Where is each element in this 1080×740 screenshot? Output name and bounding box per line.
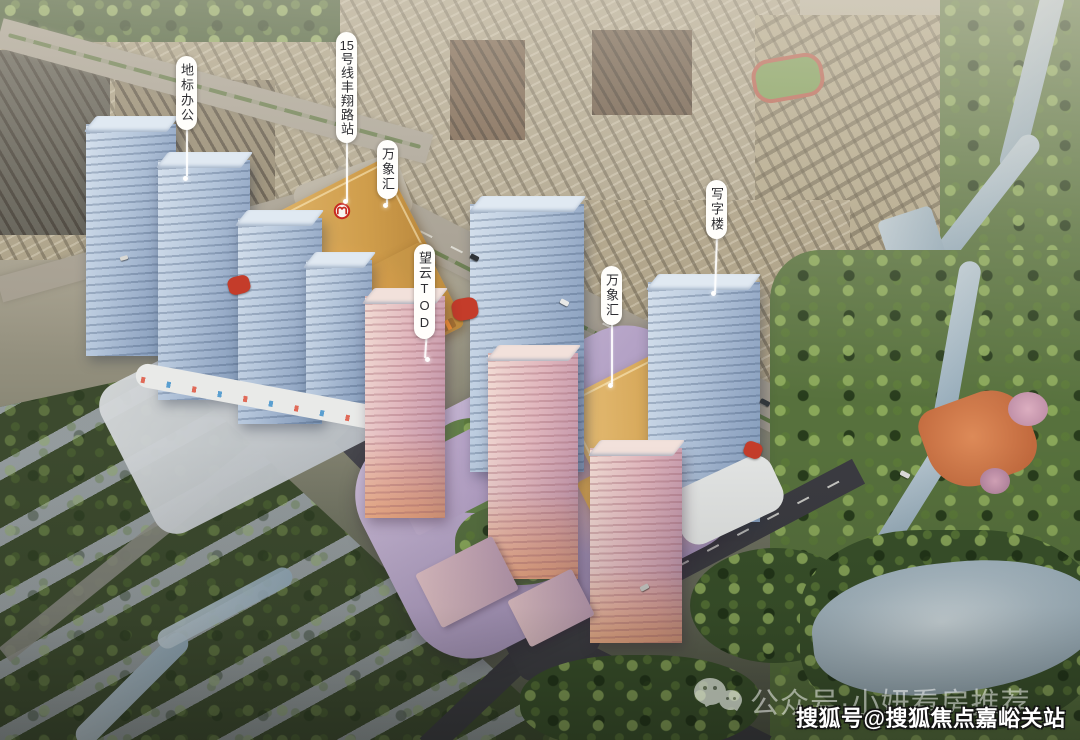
label-metro-line-number: 15 [339, 39, 354, 52]
tower-roof [302, 252, 375, 268]
label-metro-station-text: 号线丰翔路站 [339, 52, 354, 136]
pink-tower-3 [590, 448, 682, 643]
tower-roof [235, 210, 325, 226]
label-mixc-east-text: 万象汇 [604, 273, 619, 318]
dot-metro-station [343, 199, 348, 204]
tower-roof [83, 116, 178, 132]
label-landmark-office: 地标办公 [176, 56, 197, 130]
label-mixc-east: 万象汇 [601, 266, 622, 325]
metro-logo-icon [333, 202, 351, 220]
dot-landmark-office [183, 176, 188, 181]
blossom-trees-1 [1008, 392, 1048, 426]
wechat-eye [726, 697, 729, 700]
sohu-watermark-text: 搜狐号@搜狐焦点嘉峪关站 [796, 701, 1065, 733]
dot-mixc-east [608, 383, 613, 388]
wechat-eye [703, 686, 707, 690]
label-mixc-north-text: 万象汇 [380, 147, 395, 192]
tower-roof [155, 152, 252, 168]
tower-roof [587, 440, 684, 456]
label-landmark-office-text: 地标办公 [179, 63, 194, 123]
pink-tower-2 [488, 353, 578, 579]
leader-mixc-east [611, 323, 613, 384]
leader-landmark-office [186, 128, 188, 176]
tower-roof [485, 345, 580, 361]
blossom-trees-2 [980, 468, 1010, 494]
aerial-rendering: 地标办公 15号线丰翔路站 万象汇 望云TOD 万象汇 写字楼 公众号·小妍看房… [0, 0, 1080, 740]
wechat-icon [694, 676, 746, 718]
dot-office-tower [711, 291, 716, 296]
label-mixc-north: 万象汇 [377, 140, 398, 199]
wechat-eye [733, 697, 736, 700]
glass-tower-4 [306, 260, 372, 412]
label-office-tower-text: 写字楼 [709, 187, 724, 232]
label-wangyun-tod-text: 望云TOD [417, 251, 432, 332]
leader-metro-station [346, 143, 348, 201]
wechat-bubble-tail-small [731, 705, 743, 717]
tower-roof [362, 288, 448, 304]
dot-wangyun-tod [425, 357, 430, 362]
label-wangyun-tod: 望云TOD [414, 244, 435, 339]
tower-roof [646, 274, 762, 290]
wechat-bubble-tail [698, 699, 713, 714]
label-metro-station: 15号线丰翔路站 [336, 32, 357, 143]
brown-block-1 [450, 40, 525, 140]
wechat-eye [713, 686, 717, 690]
tower-roof [468, 196, 585, 212]
brown-block-2 [592, 30, 692, 115]
dot-mixc-north [383, 203, 388, 208]
label-office-tower: 写字楼 [706, 180, 727, 239]
